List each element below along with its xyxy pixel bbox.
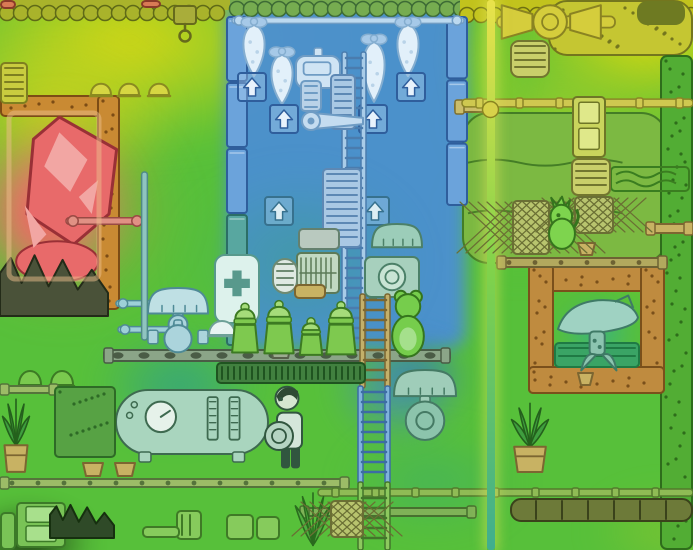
floor-beam-lower-left[interactable] — [0, 477, 349, 489]
ladder-blue-lower[interactable] — [358, 386, 390, 484]
oni-colony-temperature-overlay — [0, 0, 693, 550]
potted-plant-left-edge[interactable] — [0, 402, 32, 474]
dome-pot-wall-2[interactable] — [116, 78, 142, 98]
hot-tile-top-mid — [141, 0, 161, 8]
machine-left-edge[interactable] — [0, 512, 16, 550]
farm-tile-3[interactable] — [269, 104, 299, 134]
farm-tile-1[interactable] — [237, 72, 267, 102]
table-bottom-left[interactable] — [142, 526, 180, 538]
canister-fixture-3[interactable] — [298, 318, 324, 356]
canister-fixture-2[interactable] — [262, 299, 296, 355]
ledge-bottom-left[interactable] — [0, 384, 58, 395]
scaffold-top-left[interactable] — [0, 62, 28, 104]
gas-pump-bottom[interactable] — [392, 368, 458, 442]
storage-tank[interactable] — [114, 388, 270, 464]
pipe-dark-bottom-right[interactable] — [510, 498, 693, 522]
dome-pot-wall-3[interactable] — [146, 78, 172, 98]
ceiling-hook-fixture[interactable] — [170, 6, 200, 46]
red-room-window-frame — [8, 112, 100, 280]
pipe-fitting-assembly-top-right[interactable] — [497, 2, 615, 42]
vent-grill-top-right[interactable] — [510, 40, 550, 78]
shelf-center[interactable] — [298, 228, 340, 250]
potted-plant-right[interactable] — [508, 406, 552, 474]
mesh-wall-center[interactable] — [216, 362, 366, 384]
world-objects-layer — [0, 0, 693, 550]
liquid-valve-left[interactable] — [148, 320, 208, 354]
canister-fixture-4[interactable] — [324, 300, 358, 356]
hot-tile-top-left — [0, 0, 16, 9]
dark-rock-bottom-left — [50, 502, 114, 538]
terrain-ceiling-mid — [230, 0, 466, 16]
canister-small-3[interactable] — [256, 516, 280, 540]
floor-beam-dusk-top[interactable] — [497, 256, 667, 269]
power-pole[interactable] — [487, 0, 495, 550]
terrain-carved-band-right — [610, 166, 690, 192]
storage-cup-dusk-bottom[interactable] — [575, 371, 596, 387]
grill-machine-right[interactable] — [571, 158, 611, 196]
dusk-cap-mushroom[interactable] — [556, 294, 640, 372]
auto-sweeper[interactable] — [300, 108, 366, 134]
dome-machine-center[interactable] — [370, 222, 424, 258]
ledge-right-wall[interactable] — [646, 222, 693, 235]
critter-center[interactable] — [390, 290, 426, 358]
terrain-dark-patch-top-right — [636, 0, 686, 26]
farm-tile-2[interactable] — [396, 72, 426, 102]
pole-joint-knob[interactable] — [481, 100, 500, 119]
dome-pot-wall-1[interactable] — [88, 78, 114, 98]
mesh-box-bottom-center[interactable] — [330, 500, 364, 538]
canister-small-2[interactable] — [226, 514, 254, 540]
canister-fixture-1[interactable] — [230, 302, 260, 354]
moss-block-bottom-left — [54, 386, 116, 458]
critter-pip[interactable] — [544, 192, 580, 250]
farm-tile-5[interactable] — [264, 196, 294, 226]
duplicant[interactable] — [264, 382, 314, 472]
storage-cup-lower-left-1[interactable] — [80, 461, 106, 478]
conveyor-box-center[interactable] — [294, 284, 326, 299]
sleet-wheat-plant-4[interactable] — [392, 16, 424, 78]
mesh-storage-bin-2[interactable] — [574, 196, 614, 234]
window-machine-right[interactable] — [572, 96, 606, 158]
